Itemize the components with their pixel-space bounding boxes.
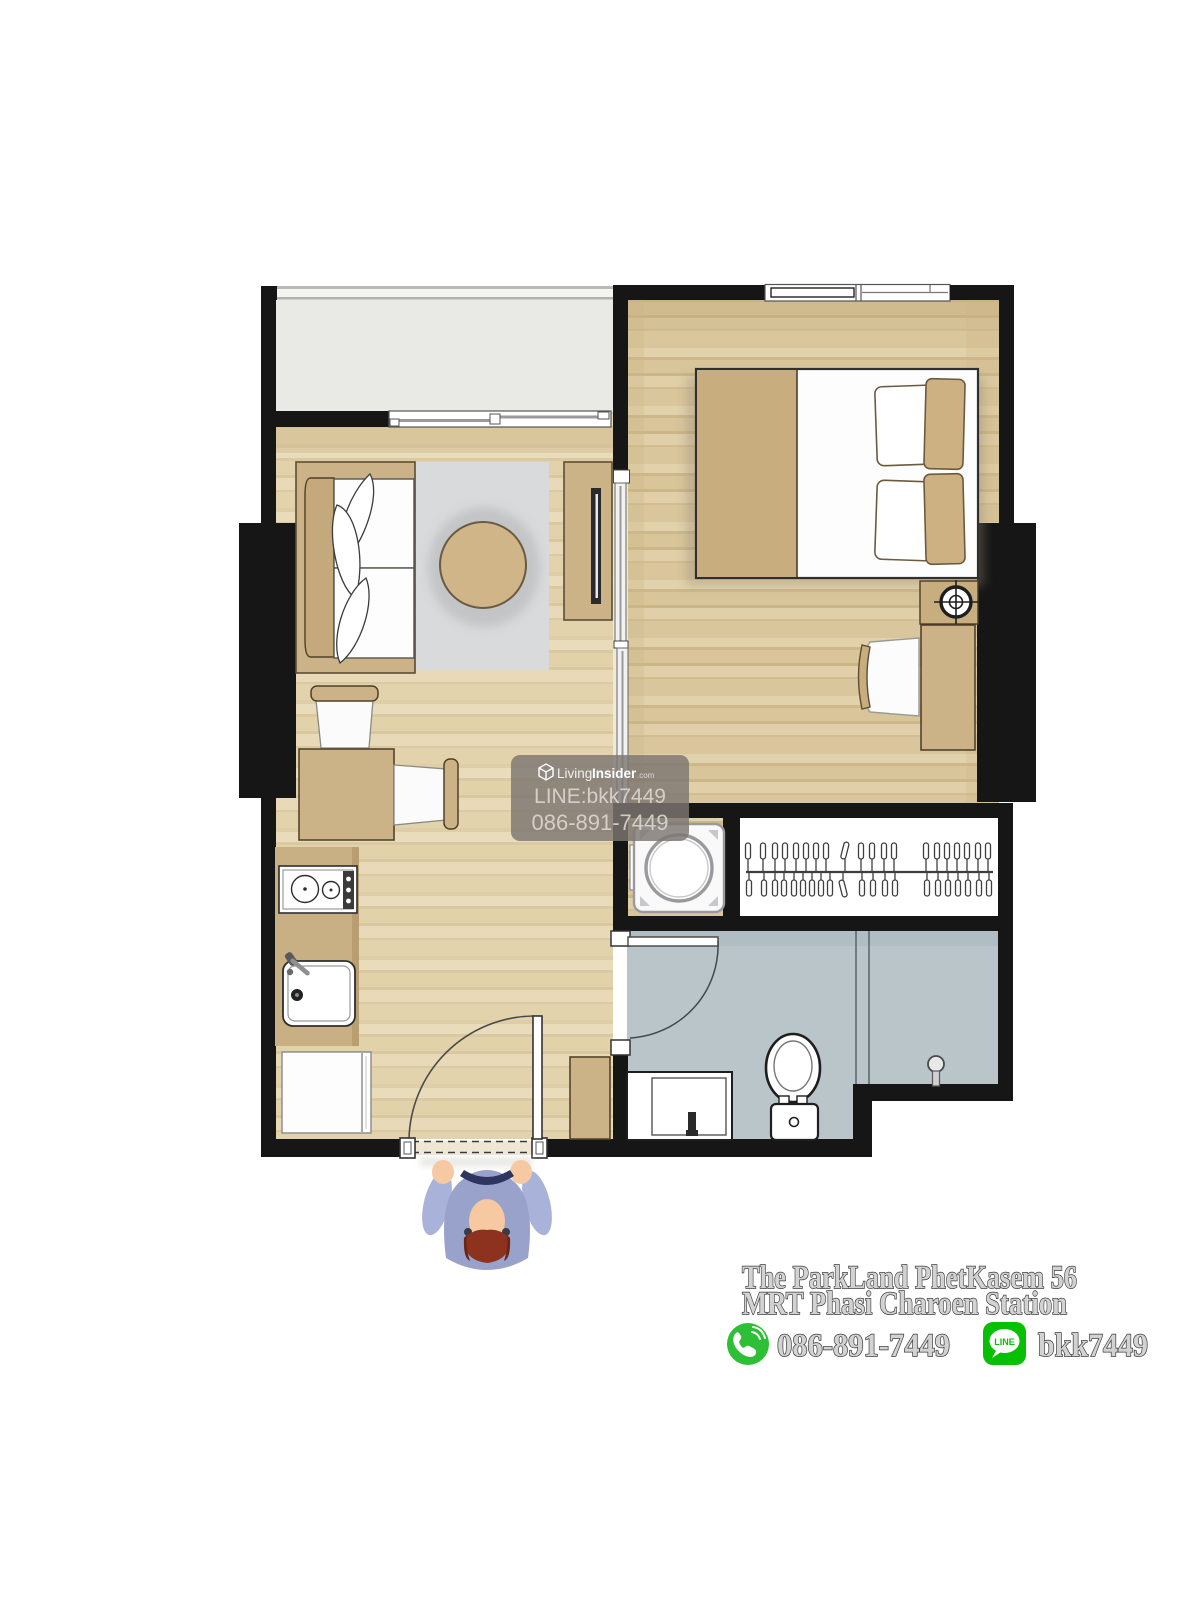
svg-text:Insider: Insider bbox=[592, 766, 637, 781]
svg-text:086-891-7449: 086-891-7449 bbox=[531, 810, 668, 835]
svg-text:MRT Phasi Charoen Station: MRT Phasi Charoen Station bbox=[742, 1286, 1067, 1322]
svg-text:bkk7449: bkk7449 bbox=[1038, 1328, 1148, 1364]
svg-text:Living: Living bbox=[557, 766, 592, 781]
svg-text:.com: .com bbox=[637, 771, 655, 780]
svg-text:086-891-7449: 086-891-7449 bbox=[777, 1328, 950, 1364]
svg-text:LINE:bkk7449: LINE:bkk7449 bbox=[534, 785, 666, 808]
svg-text:LINE: LINE bbox=[994, 1337, 1015, 1347]
